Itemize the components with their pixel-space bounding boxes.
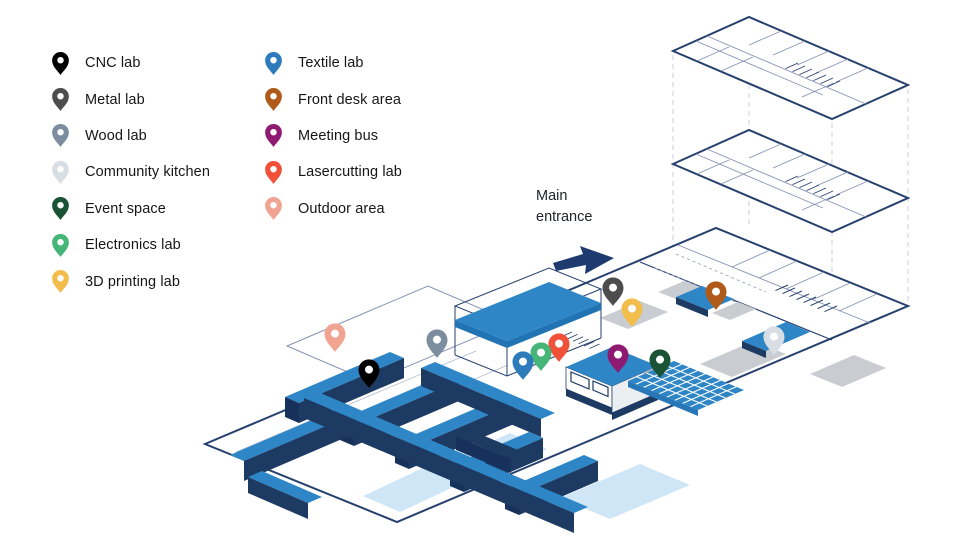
- event-space-pin-icon: [52, 197, 69, 220]
- textile-lab-pin-icon: [265, 52, 282, 75]
- main-entrance-label: Main entrance: [536, 186, 618, 228]
- legend-label: Electronics lab: [85, 237, 181, 253]
- legend-label: Outdoor area: [298, 201, 385, 217]
- cnc-lab-pin-icon: [52, 52, 69, 75]
- upper-floor-1: [673, 130, 908, 232]
- community-kitchen-pin-icon: [52, 161, 69, 184]
- legend-item-outdoor-area: Outdoor area: [265, 191, 402, 227]
- lasercutting-lab-pin-icon: [265, 161, 282, 184]
- legend-item-metal-lab: Metal lab: [52, 81, 265, 117]
- 3d-printing-lab-pin-icon: [52, 270, 69, 293]
- legend-label: 3D printing lab: [85, 274, 180, 290]
- legend-column-left: CNC labMetal labWood labCommunity kitche…: [52, 45, 265, 300]
- legend-item-electronics-lab: Electronics lab: [52, 227, 265, 263]
- front-desk-area-pin-icon: [265, 88, 282, 111]
- legend-item-meeting-bus: Meeting bus: [265, 118, 402, 154]
- legend-item-cnc-lab: CNC lab: [52, 45, 265, 81]
- legend-label: Event space: [85, 201, 166, 217]
- legend-item-front-desk-area: Front desk area: [265, 81, 402, 117]
- upper-floor-2: [673, 17, 908, 119]
- electronics-lab-pin-icon: [52, 234, 69, 257]
- legend-label: CNC lab: [85, 55, 141, 71]
- legend-item-community-kitchen: Community kitchen: [52, 154, 265, 190]
- legend-label: Front desk area: [298, 92, 401, 108]
- legend-label: Wood lab: [85, 128, 147, 144]
- outdoor-area-pin-icon: [265, 197, 282, 220]
- legend-item-wood-lab: Wood lab: [52, 118, 265, 154]
- legend-item-3d-printing-lab: 3D printing lab: [52, 263, 265, 299]
- legend-label: Textile lab: [298, 55, 364, 71]
- legend-item-textile-lab: Textile lab: [265, 45, 402, 81]
- fablab-isometric-map: CNC labMetal labWood labCommunity kitche…: [0, 0, 960, 540]
- legend-item-lasercutting-lab: Lasercutting lab: [265, 154, 402, 190]
- legend-column-right: Textile labFront desk areaMeeting busLas…: [265, 45, 402, 300]
- entrance-arrow-icon: [553, 246, 614, 274]
- metal-lab-pin-icon: [52, 88, 69, 111]
- meeting-bus-pin-icon: [265, 124, 282, 147]
- legend-label: Community kitchen: [85, 164, 210, 180]
- legend-label: Lasercutting lab: [298, 164, 402, 180]
- legend-label: Metal lab: [85, 92, 145, 108]
- legend-label: Meeting bus: [298, 128, 378, 144]
- wood-lab-pin-icon: [52, 124, 69, 147]
- legend: CNC labMetal labWood labCommunity kitche…: [52, 45, 402, 300]
- legend-item-event-space: Event space: [52, 191, 265, 227]
